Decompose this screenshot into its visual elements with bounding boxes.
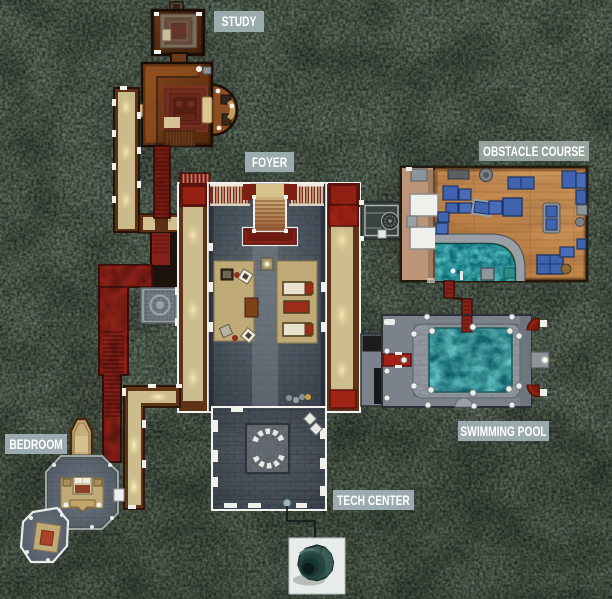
svg-text:OBSTACLE COURSE: OBSTACLE COURSE <box>483 143 585 159</box>
svg-text:BEDROOM: BEDROOM <box>9 436 62 452</box>
svg-text:STUDY: STUDY <box>222 13 257 29</box>
svg-text:FOYER: FOYER <box>252 154 287 170</box>
svg-text:SWIMMING POOL: SWIMMING POOL <box>460 423 547 439</box>
svg-text:TECH CENTER: TECH CENTER <box>337 492 410 508</box>
